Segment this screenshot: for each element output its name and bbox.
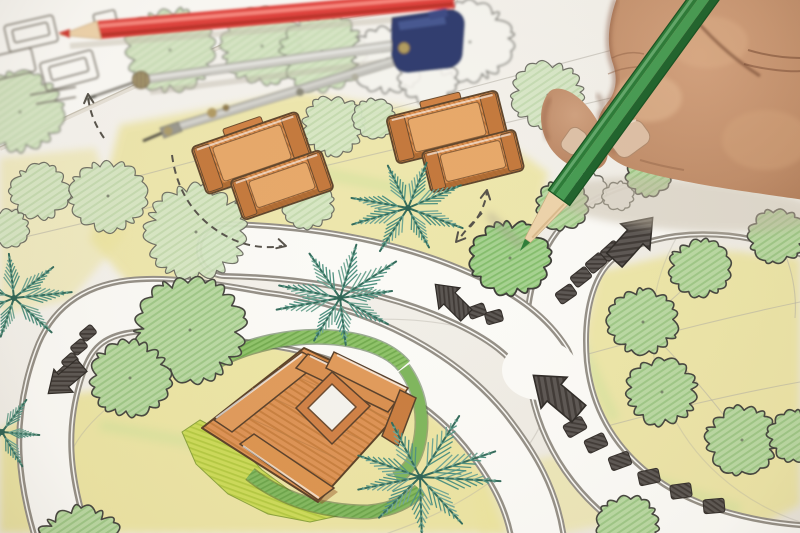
compass-hinge (399, 43, 410, 54)
photo-canvas (0, 0, 800, 533)
fern-frond (418, 211, 438, 212)
fern-frond (363, 218, 371, 219)
tree-center-dot (129, 377, 132, 380)
tree-center-dot (509, 257, 512, 260)
fern-frond (431, 216, 445, 217)
fern-frond (405, 436, 406, 447)
fern-frond (419, 171, 420, 178)
fern-frond (422, 168, 423, 172)
fern-frond (415, 447, 416, 467)
fern-frond (382, 514, 383, 516)
fern-frond (370, 463, 379, 464)
fern-center (405, 205, 411, 211)
fern-center (337, 295, 343, 301)
fern-frond (408, 440, 409, 454)
fern-frond (319, 261, 320, 268)
fern-frond (397, 176, 398, 185)
fern-frond (400, 179, 401, 190)
tree-center-dot (261, 45, 264, 48)
fern-frond (441, 431, 442, 444)
fern-frond (399, 221, 400, 235)
fern-frond (424, 213, 441, 214)
fern-frond (4, 328, 5, 332)
fern-frond (49, 268, 50, 270)
compass-screw (352, 74, 359, 81)
fern-frond (411, 215, 412, 230)
compass-brass-fitting (223, 105, 230, 112)
tree-center-dot (169, 49, 172, 52)
fern-frond (436, 434, 437, 451)
tree-center-dot (661, 391, 664, 394)
tree-center-dot (19, 111, 22, 114)
fern-frond (355, 199, 357, 200)
fern-frond (18, 405, 19, 410)
tree-center-dot (741, 439, 744, 442)
fern-frond (387, 291, 389, 292)
stepping-stone (670, 483, 693, 500)
tree-center-dot (469, 41, 472, 44)
fern-frond (20, 463, 22, 464)
fern-frond (412, 443, 413, 460)
fern-frond (354, 248, 355, 250)
fern-frond (378, 468, 394, 469)
tree-center-dot (189, 329, 192, 332)
fern-frond (374, 465, 387, 466)
fern-frond (395, 174, 396, 180)
tree-center-dot (107, 195, 110, 198)
fern-frond (446, 427, 447, 437)
fern-frond (377, 318, 382, 319)
fern-frond (470, 460, 482, 461)
fern-center (11, 295, 17, 301)
fern-frond (48, 329, 50, 330)
compass-screw (296, 88, 304, 96)
blueprint-photo (0, 0, 800, 533)
fern-frond (395, 226, 396, 238)
fern-frond (372, 315, 380, 316)
stepping-stone (703, 498, 725, 514)
fern-center (417, 474, 423, 480)
tree-center-dot (195, 231, 198, 234)
compass-brass-fitting (207, 108, 217, 118)
tree-center-dot (642, 321, 645, 324)
fern-frond (392, 231, 393, 240)
fern-frond (323, 264, 324, 274)
compass-collar (164, 127, 173, 136)
